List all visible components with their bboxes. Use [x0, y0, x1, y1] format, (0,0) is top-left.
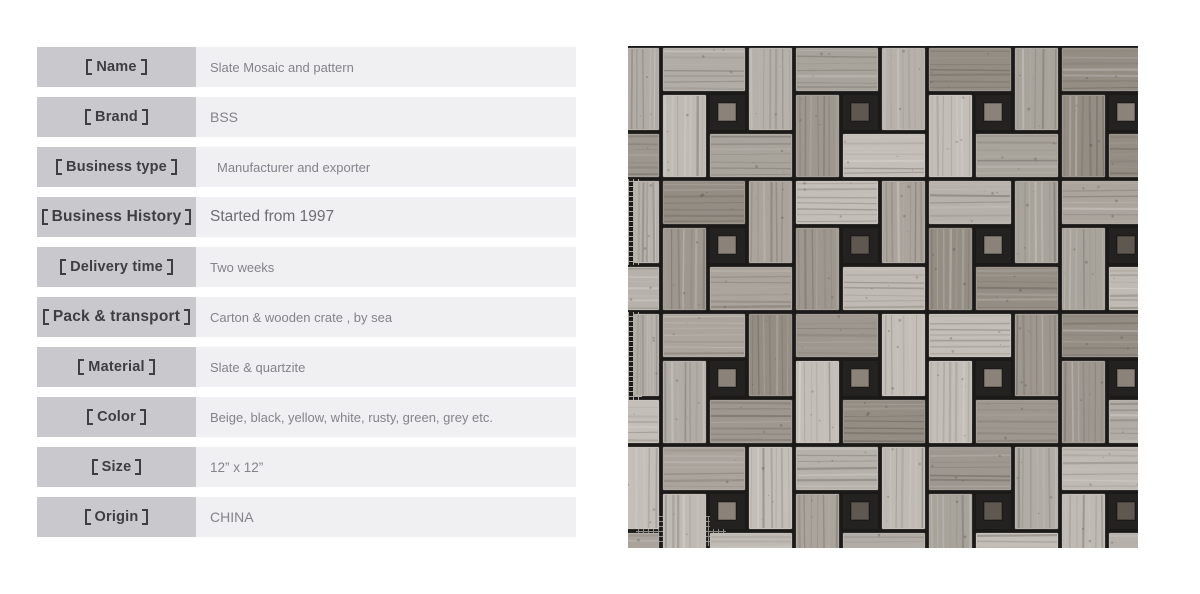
spec-row-business-type: Business typeManufacturer and exporter	[37, 147, 576, 187]
spec-value-cell-business-type: Manufacturer and exporter	[196, 147, 576, 187]
spec-label-text: Size	[92, 459, 142, 475]
spec-label-cell-name: Name	[37, 47, 196, 87]
lenticular-bracket-open-icon	[85, 509, 91, 525]
spec-value-text: CHINA	[210, 509, 254, 525]
spec-label-text: Delivery time	[60, 259, 173, 275]
lenticular-bracket-close-icon	[171, 159, 177, 175]
spec-value-text: Manufacturer and exporter	[210, 160, 370, 175]
lenticular-bracket-close-icon	[167, 259, 173, 275]
spec-value-text: Two weeks	[210, 260, 274, 275]
spec-row-name: NameSlate Mosaic and pattern	[37, 47, 576, 87]
spec-row-delivery-time: Delivery timeTwo weeks	[37, 247, 576, 287]
lenticular-bracket-open-icon	[78, 359, 84, 375]
spec-label-text: Business type	[56, 159, 177, 175]
lenticular-bracket-close-icon	[185, 209, 191, 225]
spec-label-text: Name	[86, 59, 146, 75]
spec-label-text: Pack & transport	[43, 308, 190, 326]
spec-value-text: Slate Mosaic and pattern	[210, 60, 354, 75]
lenticular-bracket-open-icon	[42, 209, 48, 225]
spec-label-core: Business type	[66, 159, 167, 175]
spec-label-cell-business-type: Business type	[37, 147, 196, 187]
spec-value-cell-name: Slate Mosaic and pattern	[196, 47, 576, 87]
spec-value-text: Carton & wooden crate , by sea	[210, 310, 392, 325]
lenticular-bracket-close-icon	[140, 409, 146, 425]
spec-label-core: Material	[88, 359, 144, 375]
spec-label-core: Delivery time	[70, 259, 163, 275]
spec-label-cell-delivery-time: Delivery time	[37, 247, 196, 287]
lenticular-bracket-open-icon	[85, 109, 91, 125]
lenticular-bracket-open-icon	[43, 309, 49, 325]
spec-row-business-history: Business HistoryStarted from 1997	[37, 197, 576, 237]
lenticular-bracket-close-icon	[135, 459, 141, 475]
lenticular-bracket-close-icon	[141, 59, 147, 75]
spec-row-origin: OriginCHINA	[37, 497, 576, 537]
spec-label-cell-business-history: Business History	[37, 197, 196, 237]
spec-label-text: Material	[78, 359, 154, 375]
mosaic-pattern-image	[628, 46, 1138, 548]
lenticular-bracket-close-icon	[142, 109, 148, 125]
spec-label-cell-brand: Brand	[37, 97, 196, 137]
spec-label-text: Brand	[85, 109, 148, 125]
spec-value-cell-pack-transport: Carton & wooden crate , by sea	[196, 297, 576, 337]
spec-value-text: Slate & quartzite	[210, 360, 305, 375]
spec-value-text: 12” x 12”	[210, 460, 263, 475]
spec-label-cell-origin: Origin	[37, 497, 196, 537]
product-photo	[628, 46, 1138, 548]
spec-value-text: Started from 1997	[210, 208, 334, 226]
lenticular-bracket-close-icon	[142, 509, 148, 525]
spec-label-cell-material: Material	[37, 347, 196, 387]
spec-label-core: Name	[96, 59, 136, 75]
lenticular-bracket-open-icon	[86, 59, 92, 75]
spec-row-size: Size12” x 12”	[37, 447, 576, 487]
spec-label-core: Color	[97, 409, 136, 425]
spec-label-cell-size: Size	[37, 447, 196, 487]
lenticular-bracket-open-icon	[56, 159, 62, 175]
spec-value-text: BSS	[210, 109, 238, 125]
spec-label-core: Origin	[95, 509, 139, 525]
lenticular-bracket-open-icon	[87, 409, 93, 425]
lenticular-bracket-open-icon	[60, 259, 66, 275]
spec-label-text: Color	[87, 409, 146, 425]
spec-value-cell-business-history: Started from 1997	[196, 197, 576, 237]
lenticular-bracket-close-icon	[184, 309, 190, 325]
spec-label-text: Origin	[85, 509, 149, 525]
lenticular-bracket-close-icon	[149, 359, 155, 375]
product-spec-table: NameSlate Mosaic and patternBrandBSSBusi…	[37, 47, 576, 537]
spec-label-cell-color: Color	[37, 397, 196, 437]
spec-label-core: Brand	[95, 109, 138, 125]
spec-row-material: MaterialSlate & quartzite	[37, 347, 576, 387]
spec-value-cell-delivery-time: Two weeks	[196, 247, 576, 287]
spec-label-core: Pack & transport	[53, 308, 180, 326]
spec-value-cell-material: Slate & quartzite	[196, 347, 576, 387]
spec-label-cell-pack-transport: Pack & transport	[37, 297, 196, 337]
lenticular-bracket-open-icon	[92, 459, 98, 475]
spec-value-text: Beige, black, yellow, white, rusty, gree…	[210, 410, 493, 425]
spec-row-brand: BrandBSS	[37, 97, 576, 137]
spec-row-color: ColorBeige, black, yellow, white, rusty,…	[37, 397, 576, 437]
spec-label-core: Size	[102, 459, 132, 475]
spec-label-core: Business History	[52, 208, 182, 226]
spec-value-cell-brand: BSS	[196, 97, 576, 137]
spec-row-pack-transport: Pack & transportCarton & wooden crate , …	[37, 297, 576, 337]
spec-value-cell-color: Beige, black, yellow, white, rusty, gree…	[196, 397, 576, 437]
spec-value-cell-size: 12” x 12”	[196, 447, 576, 487]
spec-value-cell-origin: CHINA	[196, 497, 576, 537]
spec-label-text: Business History	[42, 208, 192, 226]
